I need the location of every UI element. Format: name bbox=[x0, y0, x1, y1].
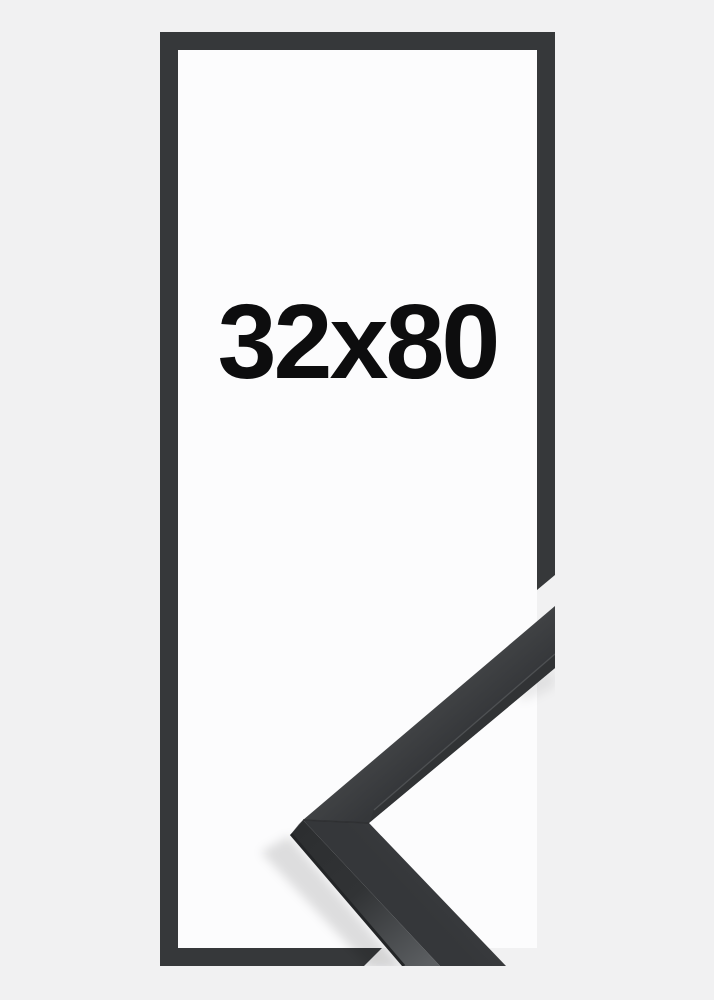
size-label: 32x80 bbox=[160, 289, 555, 395]
frame-artwork bbox=[0, 0, 714, 1000]
product-image-frame: 32x80 bbox=[0, 0, 714, 1000]
